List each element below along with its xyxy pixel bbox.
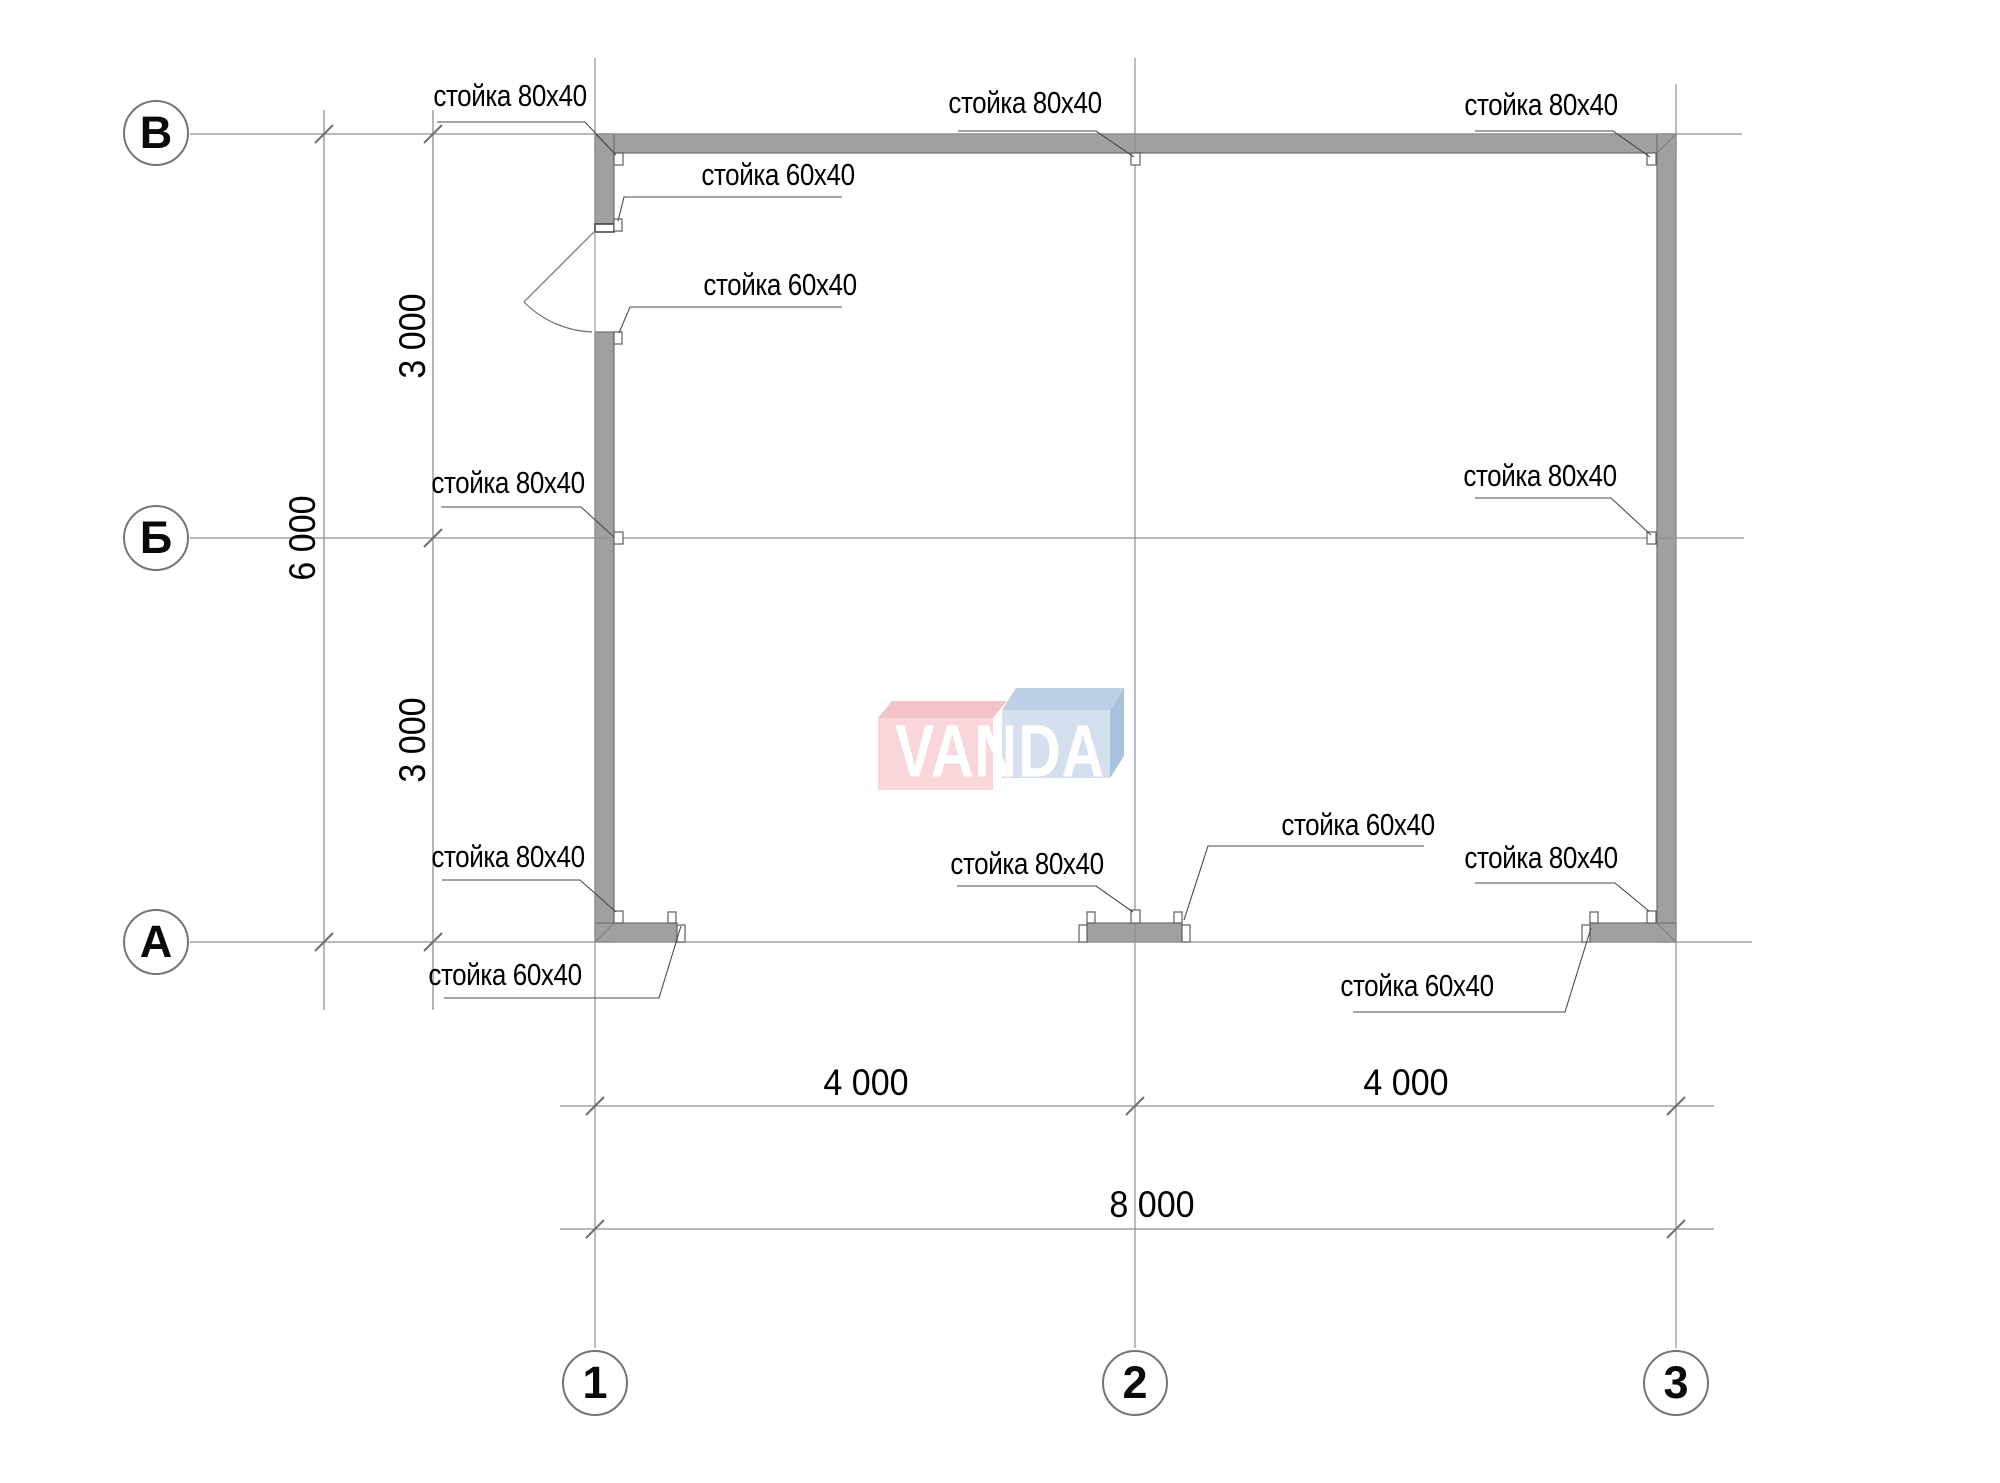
door-leaf [524,231,595,302]
dim-text-8000-total: 8 000 [1109,1184,1194,1226]
post-80x40-top-right [1647,153,1656,165]
wall-bottom-right-segment [1590,923,1676,942]
dim-text-3000-upper: 3 000 [392,293,434,378]
dimension-ticks [315,125,1685,1238]
leader-line-5 [441,507,614,537]
post-60x40-door-sill [614,332,622,344]
leader-line-3 [618,197,842,221]
callout-label-7: стойка 80х40 [431,839,584,875]
callout-label-3: стойка 60х40 [701,157,854,193]
axis-bubble-row-b: Б [123,505,189,571]
post-60x40-seg1-end [668,912,676,923]
callout-label-5: стойка 80х40 [431,465,584,501]
post-60x40-seg3-left [1590,912,1598,923]
callout-label-12: стойка 80х40 [1464,840,1617,876]
callout-label-4: стойка 60х40 [703,267,856,303]
leader-line-12 [1475,883,1649,911]
floor-plan-canvas: VANDA 3 000 3 000 6 000 4 000 4 000 8 00… [0,0,2000,1483]
dim-text-4000-left: 4 000 [823,1062,908,1104]
axis-bubble-col-1: 1 [562,1350,628,1416]
dimension-lines [324,110,1714,1229]
post-60x40-seg2-right [1174,912,1182,923]
callout-label-6: стойка 80х40 [1463,458,1616,494]
door-head-cap [595,224,614,232]
door [524,224,614,332]
leader-line-0 [437,122,616,155]
callout-label-2: стойка 80х40 [1464,87,1617,123]
callout-label-8: стойка 60х40 [428,957,581,993]
dim-text-3000-lower: 3 000 [392,697,434,782]
leader-line-7 [442,880,616,912]
callout-label-10: стойка 60х40 [1281,807,1434,843]
dim-text-4000-right: 4 000 [1363,1062,1448,1104]
wall-left-lower [595,332,614,942]
leader-line-10 [1184,846,1424,920]
logo-blue-top-face [1002,688,1124,710]
axis-bubble-row-a: А [123,909,189,975]
post-80x40-bottom-right [1647,911,1656,923]
axis-bubble-col-3: 3 [1643,1350,1709,1416]
axis-bubble-row-v: В [123,100,189,166]
axis-bubble-col-2: 2 [1102,1350,1168,1416]
leader-line-6 [1475,498,1651,535]
dim-text-6000-total: 6 000 [282,495,324,580]
vanda-logo-text: VANDA [895,709,1105,794]
callout-label-9: стойка 80х40 [950,846,1103,882]
post-80x40-right-mid [1647,532,1656,544]
wall-bottom-left-segment [595,923,677,942]
door-swing-arc [524,302,592,332]
leader-line-9 [957,886,1133,912]
callout-label-0: стойка 80х40 [433,78,586,114]
leader-line-4 [619,307,842,333]
post-60x40-seg2-left [1087,912,1095,923]
callout-label-1: стойка 80х40 [948,85,1101,121]
callout-label-11: стойка 60х40 [1340,968,1493,1004]
post-80x40-bottom-left [614,911,623,923]
post-80x40-top-center [1131,153,1140,165]
wall-left-upper [595,134,614,224]
post-80x40-left-mid [614,532,623,544]
